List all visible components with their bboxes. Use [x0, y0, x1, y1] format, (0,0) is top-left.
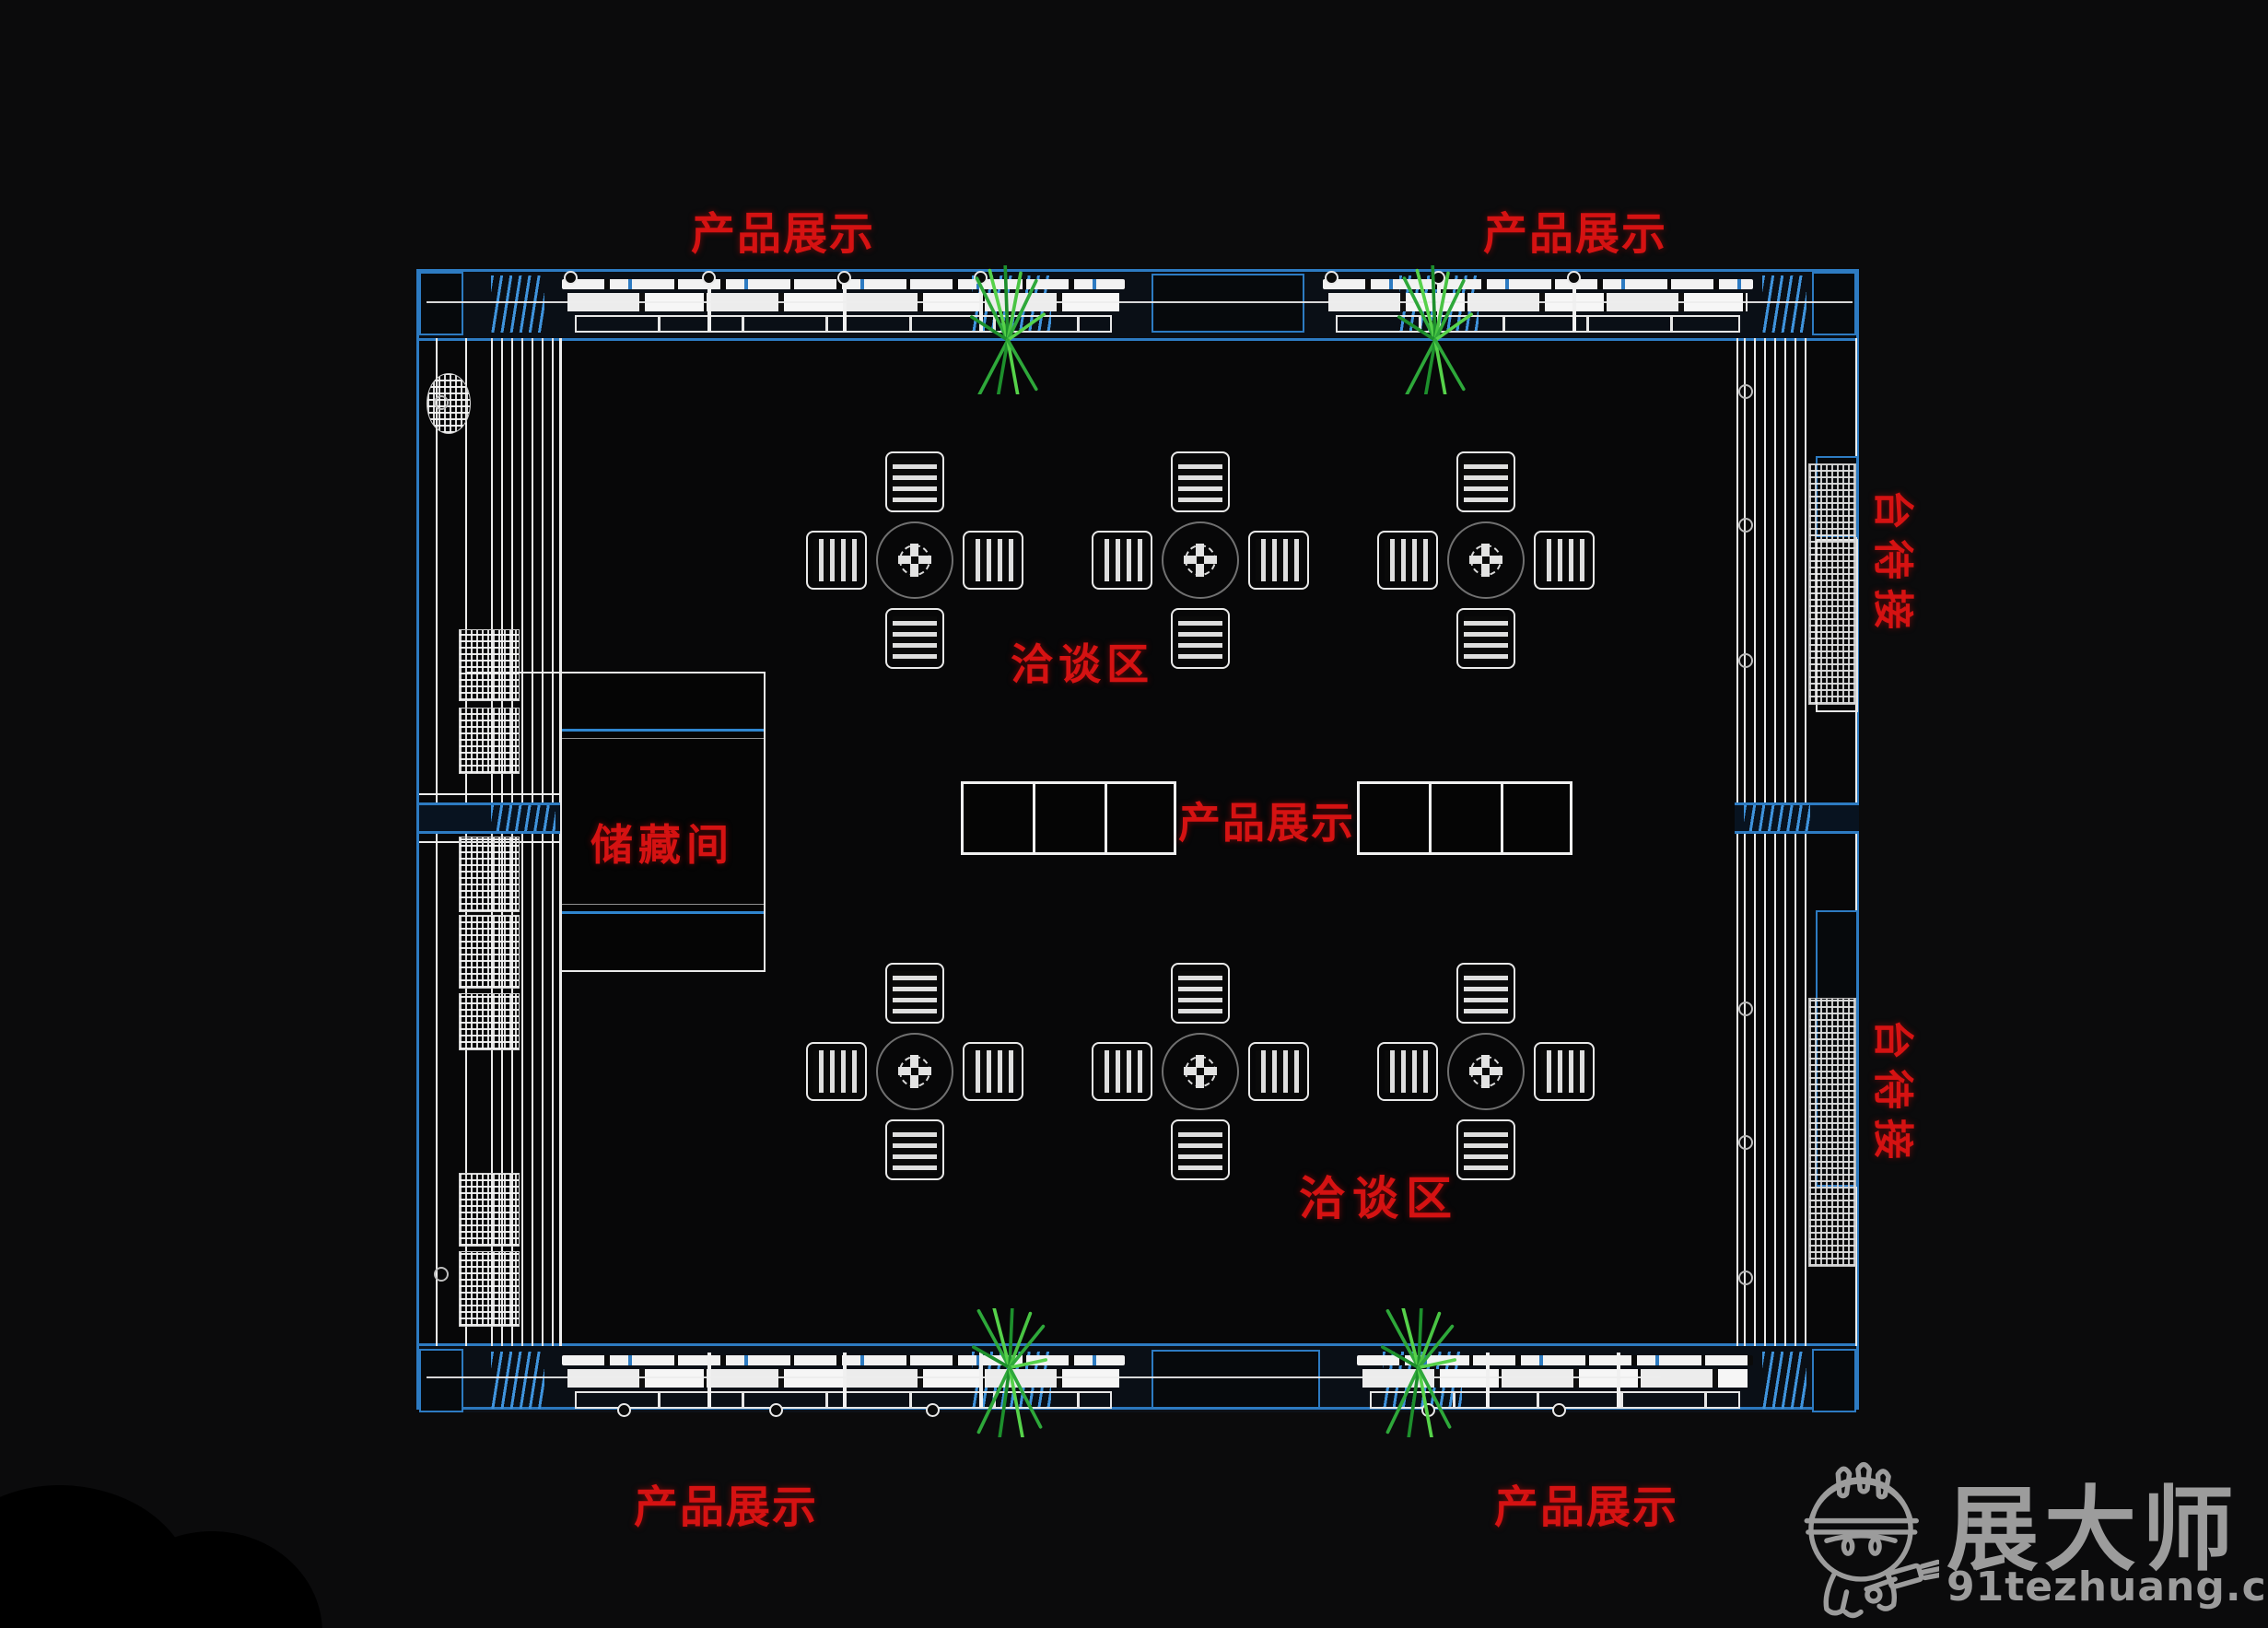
left-structure-wall — [419, 338, 562, 1346]
label-reception-desk-upper: 接待台 — [1865, 486, 1920, 632]
chair — [1171, 451, 1230, 512]
furniture-sketch — [459, 837, 520, 912]
spotlight-icon — [1552, 1403, 1566, 1417]
chair — [885, 451, 944, 512]
top-display-wall — [419, 272, 1856, 341]
spotlight-icon — [1325, 271, 1339, 285]
wall-gap-panel — [1152, 274, 1304, 333]
label-product-display-top-left: 产品展示 — [689, 197, 877, 262]
door-swing-icon — [434, 1267, 449, 1282]
spotlight-icon — [837, 271, 851, 285]
chair — [1534, 1042, 1595, 1101]
chair — [1456, 608, 1515, 669]
furniture-sketch — [459, 915, 520, 989]
plant-icon — [967, 1308, 1052, 1437]
chair — [1456, 451, 1515, 512]
meeting-table — [1090, 961, 1311, 1182]
chair — [1377, 1042, 1438, 1101]
wall-hatching — [1744, 338, 1810, 1346]
chair — [1456, 963, 1515, 1024]
meeting-table — [1375, 961, 1596, 1182]
meeting-table — [804, 450, 1025, 671]
column-icon — [1738, 1001, 1753, 1016]
wall-corner-box — [419, 272, 463, 335]
watermark: 展大师 91tezhuang.com — [1783, 1442, 2266, 1626]
column-icon — [1738, 653, 1753, 668]
chair — [1456, 1119, 1515, 1180]
meeting-table — [1090, 450, 1311, 671]
wall-guide-line — [427, 301, 1853, 303]
chair — [1171, 963, 1230, 1024]
spotlight-icon — [769, 1403, 783, 1417]
chair — [1248, 531, 1309, 590]
label-reception-desk-lower: 接待台 — [1865, 1010, 1920, 1168]
center-display-table-right — [1357, 781, 1572, 855]
spotlight-icon — [926, 1403, 940, 1417]
plant-icon — [1376, 1308, 1461, 1437]
wall-blue-band — [1735, 802, 1859, 834]
label-storage-room: 储藏间 — [583, 812, 742, 873]
chair — [885, 1119, 944, 1180]
plant-icon — [1393, 265, 1478, 394]
storage-wall-line — [466, 672, 560, 673]
meeting-table — [1375, 450, 1596, 671]
furniture-sketch — [459, 629, 520, 701]
wall-gap-panel — [1152, 1350, 1320, 1409]
column-icon — [1738, 518, 1753, 533]
center-display-table-left — [961, 781, 1176, 855]
furniture-sketch — [459, 708, 520, 774]
furniture-sketch — [459, 993, 520, 1050]
spotlight-icon — [702, 271, 716, 285]
column-icon — [1738, 1135, 1753, 1150]
door-swing-icon — [434, 395, 449, 410]
chair — [963, 1042, 1023, 1101]
wall-blue-band — [419, 802, 562, 834]
label-product-display-top-right: 产品展示 — [1481, 197, 1669, 262]
label-product-display-center: 产品展示 — [1169, 790, 1364, 850]
wall-corner-box — [1812, 272, 1856, 335]
chair — [806, 531, 867, 590]
chair — [1092, 1042, 1152, 1101]
label-product-display-bottom-right: 产品展示 — [1492, 1470, 1680, 1535]
blue-hatch-panel — [491, 275, 544, 333]
spotlight-icon — [617, 1403, 631, 1417]
chair — [1248, 1042, 1309, 1101]
chair — [1377, 531, 1438, 590]
chair — [1534, 531, 1595, 590]
spotlight-icon — [564, 271, 578, 285]
cad-floorplan-canvas: 产品展示 产品展示 产品展示 产品展示 接待台 接待台 — [0, 0, 2268, 1628]
chair — [885, 608, 944, 669]
chair — [1092, 531, 1152, 590]
plant-icon — [965, 265, 1050, 394]
wall-corner-box — [419, 1349, 463, 1412]
label-product-display-bottom-left: 产品展示 — [632, 1470, 820, 1535]
meeting-table — [804, 961, 1025, 1182]
furniture-sketch — [459, 1251, 520, 1327]
spotlight-icon — [1567, 271, 1581, 285]
chair — [963, 531, 1023, 590]
blue-hatch-panel — [1762, 1352, 1806, 1409]
wall-corner-box — [1812, 1349, 1856, 1412]
furniture-sketch — [459, 1173, 520, 1247]
chair — [806, 1042, 867, 1101]
column-icon — [1738, 384, 1753, 399]
display-cabinet-row — [1323, 279, 1753, 334]
blue-hatch-panel — [491, 1352, 544, 1409]
chair — [1171, 1119, 1230, 1180]
bottom-display-wall — [419, 1343, 1856, 1412]
watermark-site: 91tezhuang.com — [1947, 1564, 2268, 1610]
booth-floor-plan: 储藏间 洽谈区 洽谈区 产品展示 — [416, 269, 1859, 1410]
reception-sketch — [1808, 998, 1856, 1267]
column-icon — [1738, 1271, 1753, 1285]
right-structure-wall — [1735, 338, 1859, 1346]
chair — [1171, 608, 1230, 669]
chair — [885, 963, 944, 1024]
blue-hatch-panel — [1762, 275, 1806, 333]
builder-mascot-icon — [1783, 1449, 1939, 1624]
reception-sketch — [1808, 463, 1856, 705]
